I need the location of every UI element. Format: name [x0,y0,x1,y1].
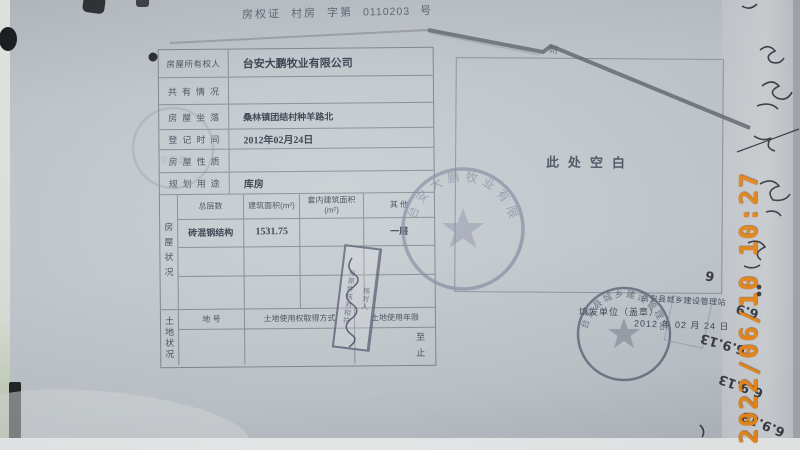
scan-artifact-blob [0,27,17,51]
page-fold-echo [430,33,540,55]
photo-overlay [0,0,800,450]
document-photo: 房权证 村房 字第 0110203 号 房屋所有权人 台安大鹏牧业有限公司 共有… [0,0,800,450]
page-top-edge-left [170,30,428,43]
page-fold-line [428,30,750,128]
handwritten-signature [346,258,358,347]
scan-artifact-dot [149,53,158,62]
camera-timestamp: 2022/06/10 10:27 [734,24,763,444]
scan-artifact-top [82,0,106,14]
scan-artifact-top2 [136,0,149,7]
